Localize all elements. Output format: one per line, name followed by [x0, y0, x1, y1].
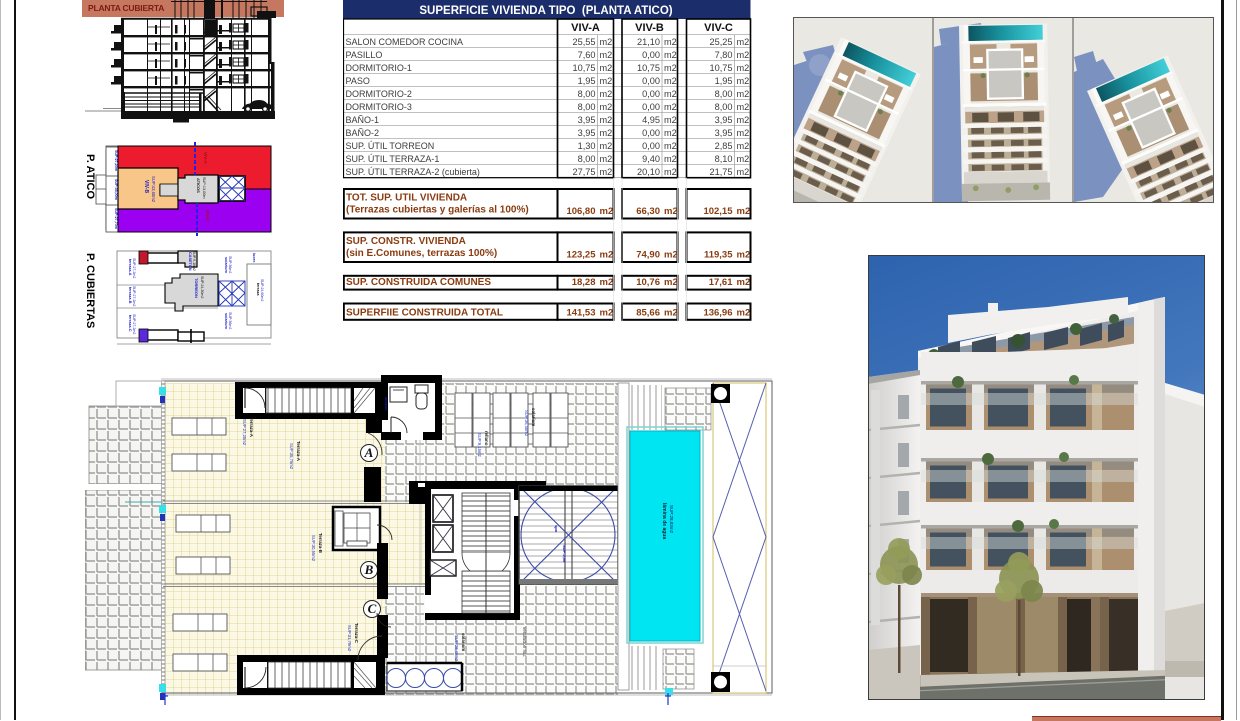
svg-text:m2: m2 [600, 206, 614, 217]
svg-text:B: B [364, 562, 374, 577]
svg-text:SUP:5,06: SUP:5,06 [562, 545, 567, 563]
svg-text:10,75: 10,75 [710, 63, 733, 73]
svg-text:SUP:13,00m: SUP:13,00m [202, 177, 206, 199]
svg-text:SUP:35,75m2: SUP:35,75m2 [289, 443, 294, 470]
svg-text:TOT. SUP. UTIL VIVIENDA: TOT. SUP. UTIL VIVIENDA [346, 193, 467, 204]
svg-text:Terraza-A: Terraza-A [296, 441, 301, 462]
svg-text:m2: m2 [664, 102, 677, 112]
svg-text:SUP:43,60m2: SUP:43,60m2 [151, 176, 156, 203]
svg-text:m2: m2 [600, 250, 614, 261]
svg-text:VIV-A: VIV-A [203, 152, 208, 165]
svg-text:7,60: 7,60 [578, 50, 596, 60]
svg-text:m2: m2 [664, 307, 678, 318]
svg-text:BAÑO-2: BAÑO-2 [346, 128, 380, 138]
svg-text:ventilación nat.: ventilación nat. [522, 627, 527, 657]
svg-text:3,95: 3,95 [578, 128, 596, 138]
svg-text:8,00: 8,00 [578, 89, 596, 99]
svg-text:(Terrazas cubiertas y galerías: (Terrazas cubiertas y galerías al 100%) [346, 205, 529, 216]
svg-text:m2: m2 [600, 277, 614, 288]
svg-text:m2: m2 [600, 76, 613, 86]
svg-text:SUPERFIIE CONSTRUIDA TOTAL: SUPERFIIE CONSTRUIDA TOTAL [346, 307, 503, 318]
svg-text:141,53: 141,53 [566, 307, 595, 318]
svg-text:m2: m2 [737, 307, 751, 318]
svg-text:m2: m2 [664, 167, 677, 177]
svg-text:SUP:9,15m2: SUP:9,15m2 [477, 433, 482, 457]
svg-text:terraza-B: terraza-B [128, 287, 132, 304]
svg-text:solarium: solarium [224, 313, 228, 329]
svg-text:m2: m2 [664, 115, 677, 125]
svg-text:m2: m2 [600, 37, 613, 47]
svg-text:m2: m2 [737, 102, 750, 112]
svg-text:SUP:27,70m: SUP:27,70m [114, 208, 118, 229]
svg-text:8,00: 8,00 [715, 102, 733, 112]
svg-text:SUP:36m2: SUP:36m2 [228, 256, 232, 273]
svg-text:m2: m2 [737, 50, 750, 60]
svg-text:terraza-A: terraza-A [128, 259, 132, 276]
svg-text:SUP. ÚTIL TERRAZA-2 (cubierta): SUP. ÚTIL TERRAZA-2 (cubierta) [346, 167, 480, 177]
svg-text:m2: m2 [737, 154, 750, 164]
svg-text:8,10: 8,10 [715, 154, 733, 164]
svg-text:CASETON: CASETON [188, 252, 192, 271]
svg-text:106,80: 106,80 [566, 206, 595, 217]
svg-text:7,80: 7,80 [715, 50, 733, 60]
svg-text:(sin E.Comunes, terrazas 100%): (sin E.Comunes, terrazas 100%) [346, 248, 497, 259]
svg-text:20,10: 20,10 [637, 167, 660, 177]
svg-text:SUP:28,03m2: SUP:28,03m2 [669, 505, 674, 534]
svg-text:acceso: acceso [384, 397, 389, 411]
svg-text:8,00: 8,00 [578, 154, 596, 164]
svg-text:9,40: 9,40 [642, 154, 660, 164]
svg-text:PASILLO: PASILLO [346, 50, 383, 60]
svg-text:66,30: 66,30 [636, 206, 660, 217]
svg-text:m2: m2 [600, 102, 613, 112]
svg-text:SUP:27,20m2: SUP:27,20m2 [242, 419, 247, 446]
svg-text:0,00: 0,00 [642, 50, 660, 60]
svg-text:SUP. ÚTIL TORREON: SUP. ÚTIL TORREON [346, 141, 435, 151]
svg-text:SUP:27,2m2: SUP:27,2m2 [132, 258, 136, 278]
svg-text:m2: m2 [737, 37, 750, 47]
svg-text:m2: m2 [664, 76, 677, 86]
svg-text:0,00: 0,00 [642, 128, 660, 138]
svg-text:8,00: 8,00 [578, 102, 596, 112]
svg-text:0,00: 0,00 [642, 102, 660, 112]
svg-text:terraza-C: terraza-C [128, 315, 132, 332]
svg-text:1,30: 1,30 [578, 141, 596, 151]
svg-text:m2: m2 [600, 115, 613, 125]
svg-text:0,00: 0,00 [642, 76, 660, 86]
svg-text:119,35: 119,35 [704, 250, 733, 261]
svg-text:m2: m2 [664, 277, 678, 288]
svg-text:m2: m2 [737, 167, 750, 177]
svg-text:m2: m2 [664, 37, 677, 47]
svg-text:10,76: 10,76 [636, 277, 660, 288]
svg-text:m2: m2 [664, 250, 678, 261]
svg-text:m2: m2 [600, 89, 613, 99]
svg-text:m2: m2 [664, 50, 677, 60]
svg-text:PASO: PASO [346, 76, 370, 86]
svg-text:SUP:9,10m2: SUP:9,10m2 [192, 251, 196, 271]
svg-text:3,95: 3,95 [715, 115, 733, 125]
svg-text:3,95: 3,95 [715, 128, 733, 138]
svg-text:m2: m2 [737, 76, 750, 86]
svg-text:8,00: 8,00 [715, 89, 733, 99]
svg-text:SUP. CONSTRUIDA COMUNES: SUP. CONSTRUIDA COMUNES [346, 277, 491, 288]
svg-text:SUP. CONSTR. VIVIENDA: SUP. CONSTR. VIVIENDA [346, 236, 466, 247]
svg-text:m2: m2 [600, 154, 613, 164]
svg-text:SUP:36m2: SUP:36m2 [228, 312, 232, 329]
svg-text:102,15: 102,15 [703, 206, 733, 217]
svg-text:21,75: 21,75 [710, 167, 733, 177]
svg-text:SUP:24,30m2: SUP:24,30m2 [200, 276, 204, 298]
svg-text:27,75: 27,75 [573, 167, 596, 177]
svg-text:136,96: 136,96 [703, 307, 732, 318]
svg-text:m2: m2 [737, 63, 750, 73]
svg-text:SUP:24,60m2: SUP:24,60m2 [260, 279, 264, 301]
svg-text:10,75: 10,75 [573, 63, 596, 73]
svg-text:SUPERFICIE VIVIENDA TIPO (PLA: SUPERFICIE VIVIENDA TIPO (PLANTA ATICO) [419, 5, 672, 17]
svg-text:TORREON: TORREON [194, 278, 199, 298]
svg-text:solarium: solarium [531, 408, 536, 426]
svg-text:17,61: 17,61 [709, 277, 733, 288]
svg-text:0,00: 0,00 [642, 89, 660, 99]
svg-text:m2: m2 [600, 141, 613, 151]
svg-text:m2: m2 [737, 128, 750, 138]
svg-text:SUP:36,40m2: SUP:36,40m2 [524, 410, 529, 437]
svg-text:ATICOS: ATICOS [196, 178, 201, 193]
svg-text:SUP. ÚTIL TERRAZA-1: SUP. ÚTIL TERRAZA-1 [346, 154, 440, 164]
svg-text:VIV-C: VIV-C [205, 210, 210, 223]
svg-text:Terraza-B: Terraza-B [318, 533, 323, 553]
svg-text:lámina de agua: lámina de agua [661, 503, 667, 539]
svg-text:m2: m2 [664, 89, 677, 99]
svg-text:SUP:27,2m2: SUP:27,2m2 [132, 286, 136, 306]
svg-text:SALON COMEDOR COCINA: SALON COMEDOR COCINA [346, 37, 464, 47]
svg-text:DORMITORIO-1: DORMITORIO-1 [346, 63, 412, 73]
svg-text:1,95: 1,95 [578, 76, 596, 86]
svg-text:SUP:27,2m2: SUP:27,2m2 [132, 314, 136, 334]
svg-text:25,25: 25,25 [710, 37, 733, 47]
svg-text:18,28: 18,28 [572, 277, 596, 288]
svg-text:3,95: 3,95 [578, 115, 596, 125]
svg-text:VIV-B: VIV-B [635, 22, 664, 34]
svg-text:DORMITORIO-3: DORMITORIO-3 [346, 102, 412, 112]
svg-text:solarium: solarium [224, 257, 228, 273]
svg-text:10,75: 10,75 [637, 63, 660, 73]
svg-text:rellano: rellano [484, 431, 489, 446]
svg-text:25,55: 25,55 [573, 37, 596, 47]
svg-text:85,66: 85,66 [636, 307, 660, 318]
svg-text:SUP:30,55m2: SUP:30,55m2 [311, 535, 316, 562]
svg-text:1,95: 1,95 [715, 76, 733, 86]
svg-text:m2: m2 [664, 63, 677, 73]
svg-text:solarium: solarium [461, 633, 466, 651]
svg-text:C: C [368, 601, 377, 616]
svg-text:lucer.: lucer. [252, 253, 256, 263]
svg-text:Terraza-A: Terraza-A [249, 417, 254, 438]
svg-text:m2: m2 [737, 250, 751, 261]
svg-text:m2: m2 [737, 206, 751, 217]
svg-text:A: A [364, 445, 374, 460]
svg-text:DORMITORIO-2: DORMITORIO-2 [346, 89, 412, 99]
svg-text:123,25: 123,25 [566, 250, 596, 261]
svg-text:m2: m2 [600, 128, 613, 138]
svg-text:m2: m2 [600, 307, 614, 318]
svg-text:21,10: 21,10 [637, 37, 660, 47]
svg-text:BAÑO-1: BAÑO-1 [346, 115, 380, 125]
svg-text:SUP:31,75m2: SUP:31,75m2 [347, 625, 352, 652]
svg-text:VIV-B: VIV-B [143, 180, 149, 193]
svg-text:2,85: 2,85 [715, 141, 733, 151]
svg-text:SUP:28,45m2: SUP:28,45m2 [454, 635, 459, 662]
svg-text:Terraza-C: Terraza-C [354, 623, 359, 644]
svg-text:P. CUBIERTAS: P. CUBIERTAS [85, 253, 96, 328]
svg-text:spa: spa [554, 525, 559, 533]
svg-text:m2: m2 [737, 277, 751, 288]
svg-text:m2: m2 [664, 154, 677, 164]
svg-text:m2: m2 [737, 115, 750, 125]
svg-text:m2: m2 [664, 128, 677, 138]
svg-text:4,95: 4,95 [642, 115, 660, 125]
svg-text:VIV-C: VIV-C [704, 22, 733, 34]
svg-text:P. ATICO: P. ATICO [85, 154, 96, 199]
svg-text:m2: m2 [737, 141, 750, 151]
svg-text:m2: m2 [600, 63, 613, 73]
svg-text:VIV-A: VIV-A [571, 22, 600, 34]
svg-text:0,00: 0,00 [642, 141, 660, 151]
svg-text:74,90: 74,90 [636, 250, 660, 261]
svg-text:m2: m2 [664, 141, 677, 151]
svg-text:m2: m2 [664, 206, 678, 217]
svg-text:m2: m2 [737, 89, 750, 99]
svg-text:m2: m2 [600, 50, 613, 60]
svg-text:m2: m2 [600, 167, 613, 177]
svg-text:terraza: terraza [256, 283, 260, 296]
